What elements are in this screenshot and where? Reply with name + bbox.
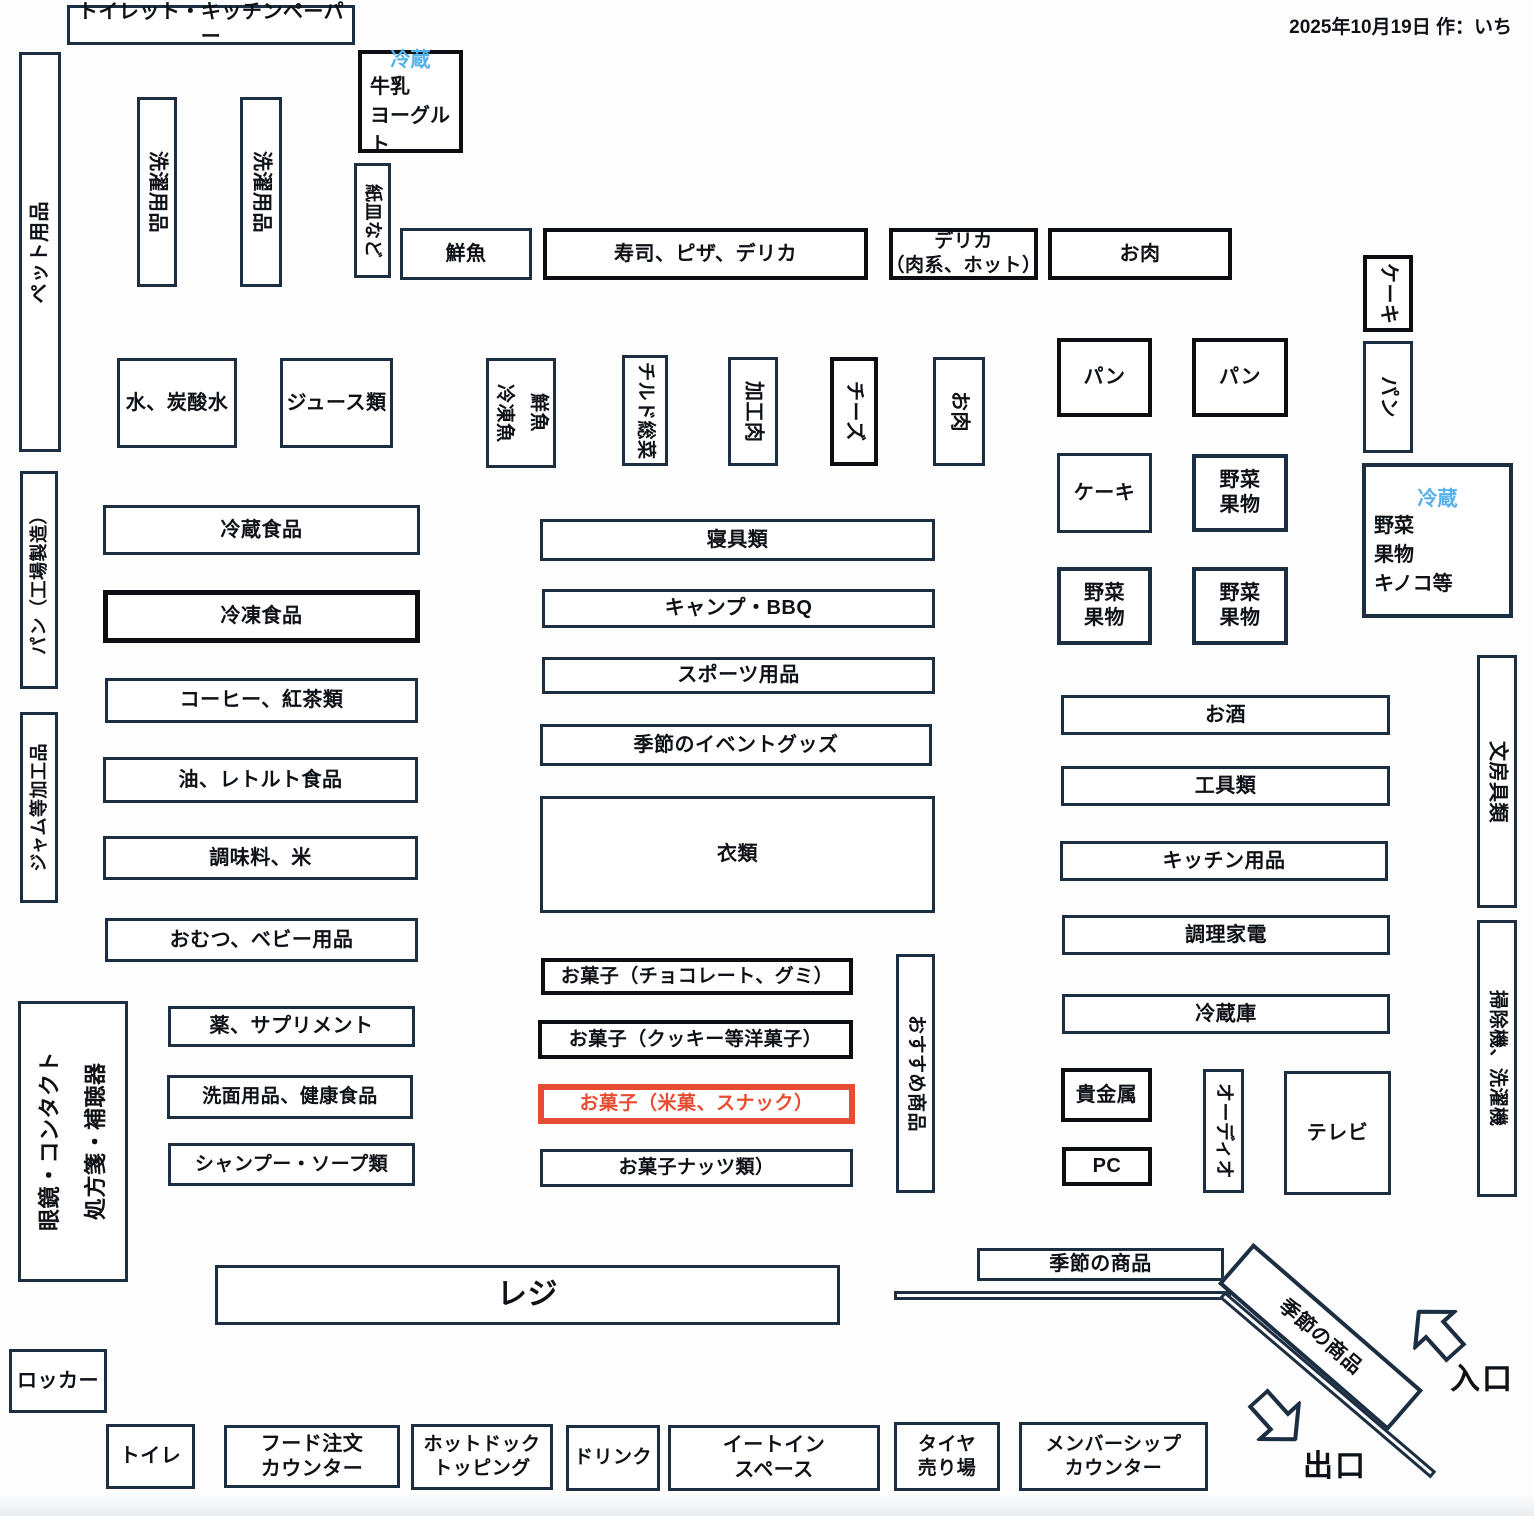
zone-sweets-cookie-label: お菓子（クッキー等洋菓子）	[569, 1028, 823, 1052]
zone-meat-top-label: お肉	[1120, 242, 1161, 267]
zone-meat-vertical-label: お肉	[947, 391, 972, 432]
zone-sushi-pizza-deli-label: 寿司、ピザ、デリカ	[614, 242, 797, 267]
zone-sweets-nuts-label: お菓子ナッツ類）	[618, 1156, 774, 1180]
zone-pc: PC	[1062, 1147, 1152, 1186]
zone-clothing: 衣類	[540, 796, 935, 913]
zone-veg-fruit-2-label: 野菜 果物	[1084, 581, 1125, 631]
zone-jam-processed-label: ジャム等加工品	[28, 743, 51, 872]
zone-toiletries-health: 洗面用品、健康食品	[167, 1075, 413, 1119]
zone-vacuum-washer-label: 掃除機、洗濯機	[1485, 990, 1509, 1127]
zone-fridge-milk-yogurt-label: ヨーグルト	[370, 102, 451, 160]
zone-veg-fruit-1-label: 野菜 果物	[1220, 468, 1261, 518]
zone-processed-meat-label: 加工肉	[741, 381, 766, 443]
zone-eat-in-space: イートイン スペース	[668, 1425, 880, 1491]
zone-cheese: チーズ	[830, 357, 878, 466]
zone-precious-metal-label: 貴金属	[1076, 1083, 1138, 1108]
zone-sushi-pizza-deli: 寿司、ピザ、デリカ	[543, 228, 868, 280]
zone-fridge-milk-yogurt-fridge-label: 冷蔵	[370, 43, 451, 72]
zone-water-soda-label: 水、炭酸水	[126, 391, 229, 416]
zone-fridge-veg-fruit-label: 果物	[1374, 541, 1501, 570]
zone-seasonal-event-label: 季節のイベントグッズ	[634, 733, 839, 758]
zone-shampoo-soap: シャンプー・ソープ類	[168, 1143, 415, 1186]
zone-glasses-pharmacy-label: 眼鏡・コンタクト 処方箋・補聴器	[27, 1051, 119, 1231]
zone-seasoning-rice-label: 調味料、米	[209, 846, 312, 871]
zone-sake: お酒	[1061, 695, 1390, 735]
zone-recommended-label: おすすめ商品	[904, 1015, 928, 1132]
zone-fridge-milk-yogurt: 冷蔵牛乳ヨーグルト	[358, 50, 463, 153]
zone-veg-fruit-2: 野菜 果物	[1057, 567, 1152, 645]
zone-audio: オーディオ	[1203, 1069, 1244, 1193]
zone-refrigerators: 冷蔵庫	[1062, 994, 1390, 1034]
exit-label: 出口	[1303, 1441, 1367, 1485]
zone-food-order-counter: フード注文 カウンター	[224, 1425, 400, 1488]
zone-deli-meat-hot: デリカ （肉系、ホット）	[889, 228, 1038, 280]
zone-sports: スポーツ用品	[542, 657, 935, 694]
zone-pet-goods-label: ペット用品	[28, 201, 53, 304]
zone-shampoo-soap-label: シャンプー・ソープ類	[195, 1153, 388, 1177]
zone-seasoning-rice: 調味料、米	[103, 836, 418, 880]
zone-pc-label: PC	[1093, 1154, 1122, 1179]
zone-chilled-sozai-label: チルド総菜	[633, 362, 657, 460]
zone-frozen-food: 冷凍食品	[103, 590, 420, 643]
zone-tools-label: 工具類	[1195, 774, 1257, 799]
zone-glasses-pharmacy: 眼鏡・コンタクト 処方箋・補聴器	[18, 1001, 128, 1282]
zone-stationery: 文房具類	[1477, 655, 1517, 908]
zone-locker-label: ロッカー	[17, 1369, 99, 1394]
zone-tools: 工具類	[1061, 766, 1390, 806]
zone-chilled-sozai: チルド総菜	[622, 355, 668, 466]
zone-fridge-milk-yogurt-label: 牛乳	[370, 73, 451, 102]
zone-bread-2-label: パン	[1219, 365, 1261, 390]
zone-medicine-supplement-label: 薬、サプリメント	[210, 1014, 374, 1039]
zone-fresh-fish-label: 鮮魚	[446, 242, 487, 267]
zone-sake-label: お酒	[1205, 703, 1246, 728]
zone-toilet-kitchen-paper-label: トイレット・キッチンペーパー	[70, 0, 352, 50]
zone-processed-meat: 加工肉	[728, 357, 778, 466]
zone-register: レジ	[215, 1265, 840, 1325]
zone-cake-vertical: ケーキ	[1363, 255, 1413, 332]
zone-seasonal-event: 季節のイベントグッズ	[540, 724, 932, 766]
zone-tire-label: タイヤ 売り場	[918, 1433, 977, 1481]
zone-sweets-cookie: お菓子（クッキー等洋菓子）	[538, 1020, 853, 1059]
zone-seasonal-items-label: 季節の商品	[1049, 1252, 1152, 1277]
zone-laundry-goods-2: 洗濯用品	[240, 97, 282, 287]
zone-seasonal-items: 季節の商品	[977, 1248, 1224, 1281]
zone-sweets-nuts: お菓子ナッツ類）	[540, 1149, 853, 1187]
zone-tv-label: テレビ	[1307, 1121, 1369, 1146]
zone-deli-meat-hot-label: デリカ （肉系、ホット）	[886, 230, 1042, 278]
zone-register-label: レジ	[497, 1276, 558, 1314]
zone-medicine-supplement: 薬、サプリメント	[168, 1006, 415, 1047]
zone-hotdog-topping: ホットドック トッピング	[411, 1424, 553, 1490]
zone-meat-vertical: お肉	[933, 357, 985, 466]
zone-bread-1: パン	[1057, 338, 1152, 417]
zone-meat-top: お肉	[1048, 228, 1232, 280]
store-floor-map: 2025年10月19日 作：いち 入口 出口 トイレット・キッチンペーパー冷蔵牛…	[0, 0, 1534, 1516]
zone-toiletries-health-label: 洗面用品、健康食品	[202, 1085, 378, 1109]
zone-locker: ロッカー	[9, 1349, 107, 1413]
zone-cake-1: ケーキ	[1057, 453, 1152, 533]
zone-bread-vertical-label: パン	[1376, 376, 1401, 418]
zone-fridge-veg-fruit-label: キノコ等	[1374, 570, 1501, 599]
zone-vacuum-washer: 掃除機、洗濯機	[1477, 920, 1517, 1197]
zone-paper-plates: 紙皿など	[354, 163, 391, 278]
zone-tv: テレビ	[1284, 1071, 1391, 1195]
zone-bread-vertical: パン	[1363, 341, 1413, 453]
zone-cheese-label: チーズ	[842, 381, 867, 442]
zone-fish-frozen-fish: 鮮魚 冷凍魚	[486, 358, 556, 468]
zone-bedding: 寝具類	[540, 519, 935, 561]
floor-edge-shading	[0, 1490, 1534, 1516]
zone-fridge-veg-fruit-fridge-label: 冷蔵	[1374, 482, 1501, 511]
zone-audio-label: オーディオ	[1212, 1083, 1236, 1179]
zone-fresh-fish: 鮮魚	[400, 228, 532, 280]
zone-frozen-food-label: 冷凍食品	[221, 604, 303, 629]
zone-membership-counter-label: メンバーシップ カウンター	[1045, 1433, 1181, 1481]
zone-chilled-food-label: 冷蔵食品	[221, 518, 303, 543]
zone-fridge-veg-fruit-label: 野菜	[1374, 512, 1501, 541]
zone-juice: ジュース類	[280, 358, 393, 448]
zone-precious-metal: 貴金属	[1061, 1068, 1152, 1122]
zone-veg-fruit-1: 野菜 果物	[1192, 454, 1288, 532]
zone-camp-bbq: キャンプ・BBQ	[542, 589, 935, 628]
zone-fish-frozen-fish-label: 鮮魚 冷凍魚	[487, 384, 555, 443]
zone-seasonal-items-diagonal: 季節の商品	[1218, 1243, 1423, 1431]
zone-bread-factory-label: パン（工場製造）	[28, 506, 51, 655]
zone-stationery-label: 文房具類	[1485, 741, 1510, 823]
zone-coffee-tea: コーヒー、紅茶類	[105, 678, 418, 723]
zone-cooking-appliance-label: 調理家電	[1185, 923, 1267, 948]
zone-drink: ドリンク	[566, 1425, 660, 1491]
zone-bedding-label: 寝具類	[707, 528, 769, 553]
zone-hotdog-topping-label: ホットドック トッピング	[423, 1433, 540, 1481]
zone-food-order-counter-label: フード注文 カウンター	[261, 1432, 364, 1482]
zone-sweets-choco-gummy: お菓子（チョコレート、グミ）	[541, 958, 853, 995]
zone-juice-label: ジュース類	[286, 391, 386, 416]
zone-toilet: トイレ	[106, 1424, 195, 1489]
zone-membership-counter: メンバーシップ カウンター	[1019, 1422, 1208, 1491]
zone-laundry-goods-2-label: 洗濯用品	[249, 151, 274, 233]
zone-toilet-kitchen-paper: トイレット・キッチンペーパー	[67, 5, 355, 45]
zone-veg-fruit-3-label: 野菜 果物	[1220, 581, 1261, 631]
zone-bread-2: パン	[1192, 338, 1288, 417]
zone-diaper-baby: おむつ、ベビー用品	[105, 918, 418, 962]
zone-oil-retort-label: 油、レトルト食品	[179, 768, 343, 793]
zone-oil-retort: 油、レトルト食品	[103, 757, 418, 803]
zone-pet-goods: ペット用品	[19, 52, 61, 452]
zone-clothing-label: 衣類	[717, 842, 758, 867]
entrance-label: 入口	[1450, 1354, 1514, 1398]
zone-chilled-food: 冷蔵食品	[103, 505, 420, 555]
zone-laundry-goods-1-label: 洗濯用品	[145, 151, 170, 233]
zone-drink-label: ドリンク	[574, 1446, 652, 1470]
zone-recommended: おすすめ商品	[896, 954, 935, 1193]
zone-bread-1-label: パン	[1084, 365, 1126, 390]
zone-camp-bbq-label: キャンプ・BBQ	[665, 596, 813, 621]
zone-cake-vertical-label: ケーキ	[1376, 263, 1401, 325]
zone-seasonal-items-diagonal-label: 季節の商品	[1274, 1294, 1368, 1380]
zone-sweets-rice-snack-label: お菓子（米菓、スナック）	[579, 1092, 813, 1116]
zone-veg-fruit-3: 野菜 果物	[1192, 567, 1288, 645]
zone-laundry-goods-1: 洗濯用品	[137, 97, 177, 287]
zone-sports-label: スポーツ用品	[677, 663, 800, 688]
zone-bread-factory: パン（工場製造）	[20, 471, 58, 689]
zone-fridge-veg-fruit: 冷蔵野菜果物キノコ等	[1362, 463, 1513, 618]
zone-toilet-label: トイレ	[120, 1444, 182, 1469]
date-author-note: 2025年10月19日 作：いち	[1289, 12, 1512, 39]
zone-jam-processed: ジャム等加工品	[20, 712, 58, 903]
zone-sweets-rice-snack: お菓子（米菓、スナック）	[538, 1084, 855, 1124]
zone-cake-1-label: ケーキ	[1074, 481, 1136, 506]
zone-diaper-baby-label: おむつ、ベビー用品	[170, 928, 354, 953]
zone-kitchen-goods-label: キッチン用品	[1163, 849, 1286, 874]
zone-sweets-choco-gummy-label: お菓子（チョコレート、グミ）	[561, 965, 834, 989]
zone-tire: タイヤ 売り場	[894, 1422, 1000, 1491]
zone-coffee-tea-label: コーヒー、紅茶類	[180, 688, 344, 713]
zone-kitchen-goods: キッチン用品	[1060, 841, 1388, 881]
wall-horizontal	[894, 1291, 1231, 1300]
zone-cooking-appliance: 調理家電	[1062, 915, 1390, 955]
zone-water-soda: 水、炭酸水	[117, 358, 237, 448]
zone-eat-in-space-label: イートイン スペース	[723, 1433, 826, 1483]
zone-paper-plates-label: 紙皿など	[361, 184, 384, 258]
zone-refrigerators-label: 冷蔵庫	[1195, 1002, 1257, 1027]
